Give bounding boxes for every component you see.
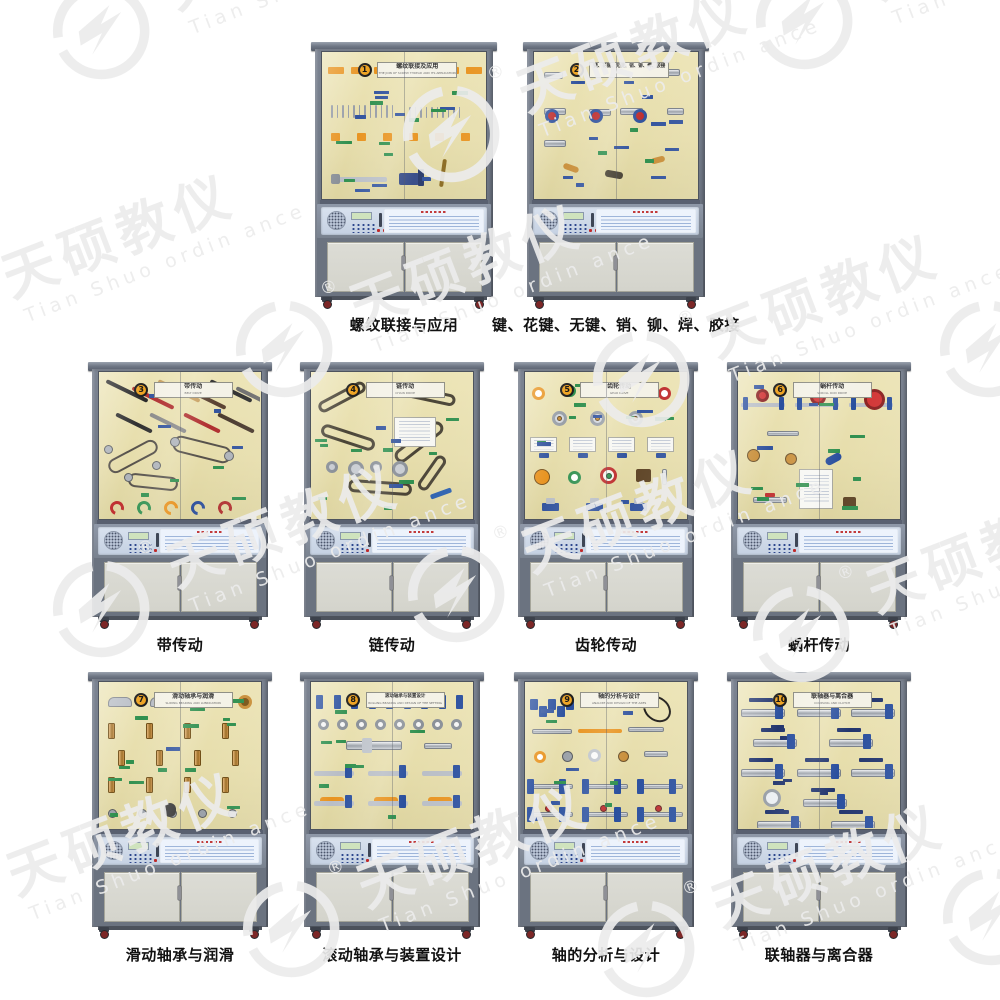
display-part <box>542 503 559 511</box>
plate-title: 键、花键、无键、销、铆、焊、胶接 <box>590 63 668 71</box>
display-part <box>146 777 153 793</box>
instruction-card <box>160 839 258 863</box>
speaker-icon <box>539 211 558 230</box>
display-part <box>185 768 196 772</box>
display-part <box>409 107 411 118</box>
pane-divider <box>404 52 405 199</box>
instruction-heading <box>836 841 862 843</box>
display-part <box>118 750 125 766</box>
control-console <box>520 834 692 868</box>
display-part <box>641 784 683 789</box>
display-part <box>214 409 221 413</box>
pane-divider <box>819 682 820 829</box>
display-part <box>426 107 428 118</box>
display-part <box>636 469 651 482</box>
display-part <box>569 416 576 420</box>
caster-tire <box>323 300 332 309</box>
display-part <box>530 699 538 710</box>
display-part <box>152 461 161 470</box>
display-part <box>375 96 388 100</box>
caster-wheel <box>523 617 538 630</box>
display-part <box>775 764 783 779</box>
display-part <box>544 72 563 79</box>
plinth <box>737 616 901 620</box>
title-plate: 滑动轴承与润滑SLIDING BEARING AND LUBRICATION <box>154 692 233 708</box>
display-part <box>557 706 565 717</box>
caster-wheel <box>523 927 538 940</box>
speaker-icon <box>743 531 762 550</box>
display-part <box>348 461 364 477</box>
watermark-logo-icon <box>920 280 1000 417</box>
cabinet-door-right <box>607 872 683 922</box>
title-plate: 联轴器与离合器COUPLING AND CLUTCH <box>793 692 872 708</box>
display-part <box>805 758 829 762</box>
display-part <box>194 750 201 766</box>
display-part <box>452 91 467 95</box>
caster-wheel <box>673 927 688 940</box>
display-part <box>416 453 449 493</box>
red-button <box>580 549 583 552</box>
display-cabinet: 7滑动轴承与润滑SLIDING BEARING AND LUBRICATION <box>92 672 268 940</box>
display-window: 5齿轮传动GEAR DRIVE <box>524 371 688 520</box>
display-part <box>420 107 422 118</box>
red-button <box>377 229 380 232</box>
instruction-text-lines <box>601 216 691 230</box>
display-part <box>319 423 376 453</box>
display-part <box>530 817 542 821</box>
plinth <box>98 616 262 620</box>
display-part <box>318 719 329 730</box>
title-plate: 蜗杆传动SCROLL ROD DRIVE <box>793 382 872 398</box>
keypad-buttons <box>563 223 587 233</box>
red-button <box>366 549 369 552</box>
cabinet-caption: 蜗杆传动 <box>685 634 953 654</box>
plate-subtitle: CHAIN DRIVE <box>367 391 444 395</box>
display-window: 3带传动BELT DRIVE <box>98 371 262 520</box>
display-part <box>328 67 344 74</box>
red-button <box>154 859 157 862</box>
door-handle <box>817 576 820 590</box>
title-plate: 齿轮传动GEAR DRIVE <box>580 382 659 398</box>
display-part <box>637 779 644 794</box>
display-part <box>669 807 676 822</box>
instruction-card <box>596 209 696 233</box>
plinth <box>310 616 474 620</box>
lcd-display <box>128 842 149 850</box>
display-part <box>578 453 588 458</box>
caster-tire <box>526 930 535 939</box>
title-plate: 链传动CHAIN DRIVE <box>366 382 445 398</box>
instruction-text-lines <box>377 846 466 860</box>
display-part <box>461 133 470 141</box>
display-part <box>797 397 802 410</box>
title-plate: 轴的分析与设计ANALYZE AND DESIGN OF THE AXES <box>580 692 659 708</box>
display-part <box>126 760 135 764</box>
plate-subtitle: THE JOIN OF SCREW THREAD AND ITS APPLICA… <box>378 71 456 75</box>
display-part <box>633 109 647 123</box>
watermark-brand: 天硕教仪 <box>0 145 301 307</box>
display-part <box>534 751 546 763</box>
control-console <box>94 524 266 558</box>
display-part <box>224 451 234 461</box>
red-button <box>580 859 583 862</box>
display-part <box>887 397 892 410</box>
lower-cabinet <box>529 238 703 296</box>
display-part <box>532 387 545 400</box>
plate-title: 滚动轴承与装置设计 <box>367 693 444 701</box>
display-part <box>318 497 326 501</box>
plinth <box>533 296 699 300</box>
display-part <box>791 816 799 828</box>
power-toggle <box>368 843 371 857</box>
display-part <box>351 449 362 453</box>
instruction-card <box>160 529 258 553</box>
display-part <box>356 719 367 730</box>
door-handle <box>604 576 607 590</box>
plate-subtitle: ROLLING BEARING AND DESIGN OF THE SETTIN… <box>367 701 444 705</box>
plinth <box>524 926 688 930</box>
lower-cabinet <box>317 238 491 296</box>
display-part <box>588 749 601 762</box>
display-part <box>590 498 599 504</box>
display-cabinet: 6蜗杆传动SCROLL ROD DRIVE <box>731 362 907 630</box>
display-part <box>384 153 393 157</box>
display-part <box>232 497 246 501</box>
watermark-brand: 天硕教仪 <box>160 0 466 19</box>
speaker-icon <box>743 841 762 860</box>
display-part <box>370 101 383 105</box>
cabinet-door-left <box>327 242 404 292</box>
cabinet-door-right <box>181 562 257 612</box>
instruction-text-lines <box>804 536 893 550</box>
display-part <box>568 471 581 484</box>
instruction-text-lines <box>389 216 479 230</box>
display-part <box>320 444 328 448</box>
instruction-heading <box>197 531 223 533</box>
caster-tire <box>889 930 898 939</box>
display-part <box>413 719 424 730</box>
lcd-display <box>554 532 575 540</box>
display-part <box>626 416 634 420</box>
display-part <box>850 435 865 439</box>
instruction-heading <box>409 841 435 843</box>
display-part <box>757 446 773 450</box>
power-toggle <box>368 533 371 547</box>
display-part <box>642 95 653 99</box>
display-part <box>851 397 856 410</box>
display-part <box>574 403 586 407</box>
lower-cabinet <box>733 868 905 926</box>
cabinet-door-right <box>393 562 469 612</box>
display-part <box>331 133 340 141</box>
display-part <box>124 473 133 482</box>
lcd-display <box>340 842 361 850</box>
lcd-display <box>767 842 788 850</box>
caster-tire <box>889 620 898 629</box>
control-console <box>317 204 491 238</box>
plate-subtitle: BELT DRIVE <box>155 391 232 395</box>
display-part <box>336 740 347 744</box>
door-handle <box>817 886 820 900</box>
console-panel <box>310 837 474 865</box>
console-panel <box>98 837 262 865</box>
watermark-brand: 天硕教仪 <box>863 0 1000 9</box>
display-part <box>357 133 366 141</box>
caster-tire <box>687 300 696 309</box>
display-part <box>551 801 560 805</box>
plate-title: 滑动轴承与润滑 <box>155 693 232 701</box>
cabinet-door-right <box>405 242 482 292</box>
display-part <box>771 725 784 729</box>
display-part <box>645 159 654 163</box>
display-part <box>346 741 402 750</box>
console-panel <box>737 527 901 555</box>
display-part <box>386 105 388 118</box>
display-part <box>149 412 187 433</box>
lcd-display <box>554 842 575 850</box>
display-part <box>633 416 638 421</box>
door-handle <box>614 256 617 270</box>
display-part <box>571 81 585 85</box>
keypad-buttons <box>767 853 791 863</box>
display-part <box>537 442 551 446</box>
instruction-heading <box>409 531 435 533</box>
display-window: 4链传动CHAIN DRIVE <box>310 371 474 520</box>
display-part <box>623 711 633 715</box>
instruction-text-lines <box>377 536 466 550</box>
display-part <box>779 397 784 410</box>
display-part <box>589 137 598 141</box>
display-part <box>198 809 207 818</box>
display-cabinet: 5齿轮传动GEAR DRIVE <box>518 362 694 630</box>
display-part <box>743 397 748 410</box>
display-window: 8滚动轴承与装置设计ROLLING BEARING AND DESIGN OF … <box>310 681 474 830</box>
display-part <box>348 105 350 118</box>
display-part <box>767 431 799 436</box>
display-part <box>345 795 352 808</box>
cabinet-door-left <box>539 242 616 292</box>
display-part <box>326 461 338 473</box>
lcd-display <box>351 212 372 220</box>
control-console <box>529 204 703 238</box>
watermark-brand: 天硕教仪 <box>700 205 1000 367</box>
display-part <box>379 142 390 146</box>
display-part <box>232 750 239 766</box>
instruction-card <box>586 529 684 553</box>
display-part <box>824 451 843 466</box>
plate-title: 蜗杆传动 <box>794 383 871 391</box>
caster-wheel <box>97 617 112 630</box>
instruction-card <box>799 529 897 553</box>
display-part <box>775 809 784 813</box>
watermark-logo-icon <box>33 0 170 99</box>
plate-title: 螺纹联接及应用 <box>378 63 456 71</box>
display-part <box>135 716 148 720</box>
cabinet-door-right <box>617 242 694 292</box>
display-part <box>337 719 348 730</box>
display-part <box>375 719 386 730</box>
display-part <box>431 109 445 113</box>
display-part <box>531 784 573 789</box>
display-part <box>531 812 573 817</box>
instruction-heading <box>197 841 223 843</box>
display-part <box>223 718 230 722</box>
display-part <box>337 105 339 118</box>
display-cabinet: 4链传动CHAIN DRIVE <box>304 362 480 630</box>
display-part <box>410 730 425 734</box>
display-part <box>184 777 191 793</box>
caster-wheel <box>247 617 262 630</box>
lcd-display <box>563 212 584 220</box>
display-part <box>582 807 589 822</box>
display-part <box>129 781 144 785</box>
display-part <box>885 704 893 719</box>
display-part <box>336 141 352 145</box>
display-part <box>466 67 482 74</box>
speaker-icon <box>316 531 335 550</box>
caster-wheel <box>673 617 688 630</box>
instruction-text-lines <box>165 536 254 550</box>
red-button <box>793 549 796 552</box>
display-part <box>669 120 683 124</box>
caster-wheel <box>309 617 324 630</box>
display-part <box>424 743 452 749</box>
caster-wheel <box>97 927 112 940</box>
registered-trademark-icon: ® <box>489 521 512 546</box>
caster-wheel <box>684 297 699 310</box>
display-part <box>383 133 392 141</box>
display-part <box>399 765 406 778</box>
cabinet-door-left <box>743 562 819 612</box>
watermark-latin: Tian Shuo ordin ance <box>16 199 310 329</box>
display-part <box>435 133 444 141</box>
speaker-icon <box>104 531 123 550</box>
display-part <box>527 779 534 794</box>
cabinet-door-left <box>743 872 819 922</box>
display-part <box>451 719 462 730</box>
display-part <box>796 483 809 487</box>
display-part <box>138 809 147 818</box>
title-plate: 滚动轴承与装置设计ROLLING BEARING AND DESIGN OF T… <box>366 692 445 708</box>
display-part <box>394 719 405 730</box>
caster-wheel <box>532 297 547 310</box>
display-part <box>108 723 115 739</box>
display-part <box>532 729 572 734</box>
display-part <box>828 449 840 453</box>
display-part <box>863 734 871 749</box>
keypad-buttons <box>340 853 364 863</box>
display-part <box>831 764 839 779</box>
watermark-latin: Tian Shuo ordin ance <box>181 0 475 41</box>
caster-tire <box>100 930 109 939</box>
cabinet-number-badge: 2 <box>570 63 584 77</box>
door-handle <box>402 256 405 270</box>
control-console <box>733 834 905 868</box>
instruction-text-lines <box>591 536 680 550</box>
title-plate: 键、花键、无键、销、铆、焊、胶接 <box>589 62 669 78</box>
display-part <box>589 109 603 123</box>
display-part <box>453 795 460 808</box>
display-cabinet: 10联轴器与离合器COUPLING AND CLUTCH <box>731 672 907 940</box>
display-part <box>399 480 415 484</box>
display-window: 9轴的分析与设计ANALYZE AND DESIGN OF THE AXES <box>524 681 688 830</box>
door-handle <box>390 886 393 900</box>
caster-tire <box>312 620 321 629</box>
display-part <box>656 453 666 458</box>
caster-tire <box>250 620 259 629</box>
title-plate: 带传动BELT DRIVE <box>154 382 233 398</box>
display-part <box>754 385 764 389</box>
plinth <box>737 926 901 930</box>
display-window: 1螺纹联接及应用THE JOIN OF SCREW THREAD AND ITS… <box>321 51 487 200</box>
pane-divider <box>606 372 607 519</box>
display-part <box>557 416 562 421</box>
cabinet-door-left <box>530 562 606 612</box>
display-part <box>188 498 208 518</box>
door-handle <box>390 576 393 590</box>
instruction-heading <box>633 211 659 213</box>
caster-wheel <box>320 297 335 310</box>
cabinet-caption: 联轴器与离合器 <box>685 944 953 964</box>
display-part <box>170 479 178 483</box>
red-button <box>793 859 796 862</box>
display-part <box>446 418 459 422</box>
display-part <box>644 751 668 757</box>
power-toggle <box>156 533 159 547</box>
display-part <box>409 133 418 141</box>
instruction-text-lines <box>591 846 680 860</box>
display-part <box>135 499 153 517</box>
display-part <box>183 412 221 433</box>
display-part <box>115 412 153 433</box>
display-part <box>614 807 621 822</box>
lower-cabinet <box>733 558 905 616</box>
title-plate: 螺纹联接及应用THE JOIN OF SCREW THREAD AND ITS … <box>377 62 457 78</box>
display-part <box>399 795 406 808</box>
cabinet-door-right <box>393 872 469 922</box>
power-toggle <box>156 843 159 857</box>
speaker-icon <box>104 841 123 860</box>
display-part <box>785 453 797 465</box>
control-console <box>306 834 478 868</box>
watermark-logo-icon <box>923 848 1000 985</box>
display-part <box>344 179 355 183</box>
console-panel <box>533 207 699 235</box>
display-part <box>146 723 153 739</box>
display-part <box>335 710 346 714</box>
display-cabinet: 1螺纹联接及应用THE JOIN OF SCREW THREAD AND ITS… <box>315 42 493 310</box>
display-part <box>757 497 769 501</box>
caster-tire <box>535 300 544 309</box>
plate-subtitle: ANALYZE AND DESIGN OF THE AXES <box>581 701 658 705</box>
cabinet-door-left <box>530 872 606 922</box>
display-part <box>232 446 243 450</box>
display-part <box>809 403 818 407</box>
display-part <box>399 173 419 185</box>
display-part <box>375 105 377 118</box>
display-part <box>842 506 858 510</box>
instruction-heading <box>421 211 447 213</box>
display-part <box>108 499 127 518</box>
display-part <box>164 803 176 817</box>
console-panel <box>524 837 688 865</box>
display-part <box>667 108 684 115</box>
display-part <box>316 379 368 414</box>
instruction-card <box>384 209 484 233</box>
instruction-text-lines <box>165 846 254 860</box>
display-part <box>110 813 117 817</box>
keypad-buttons <box>554 543 578 553</box>
